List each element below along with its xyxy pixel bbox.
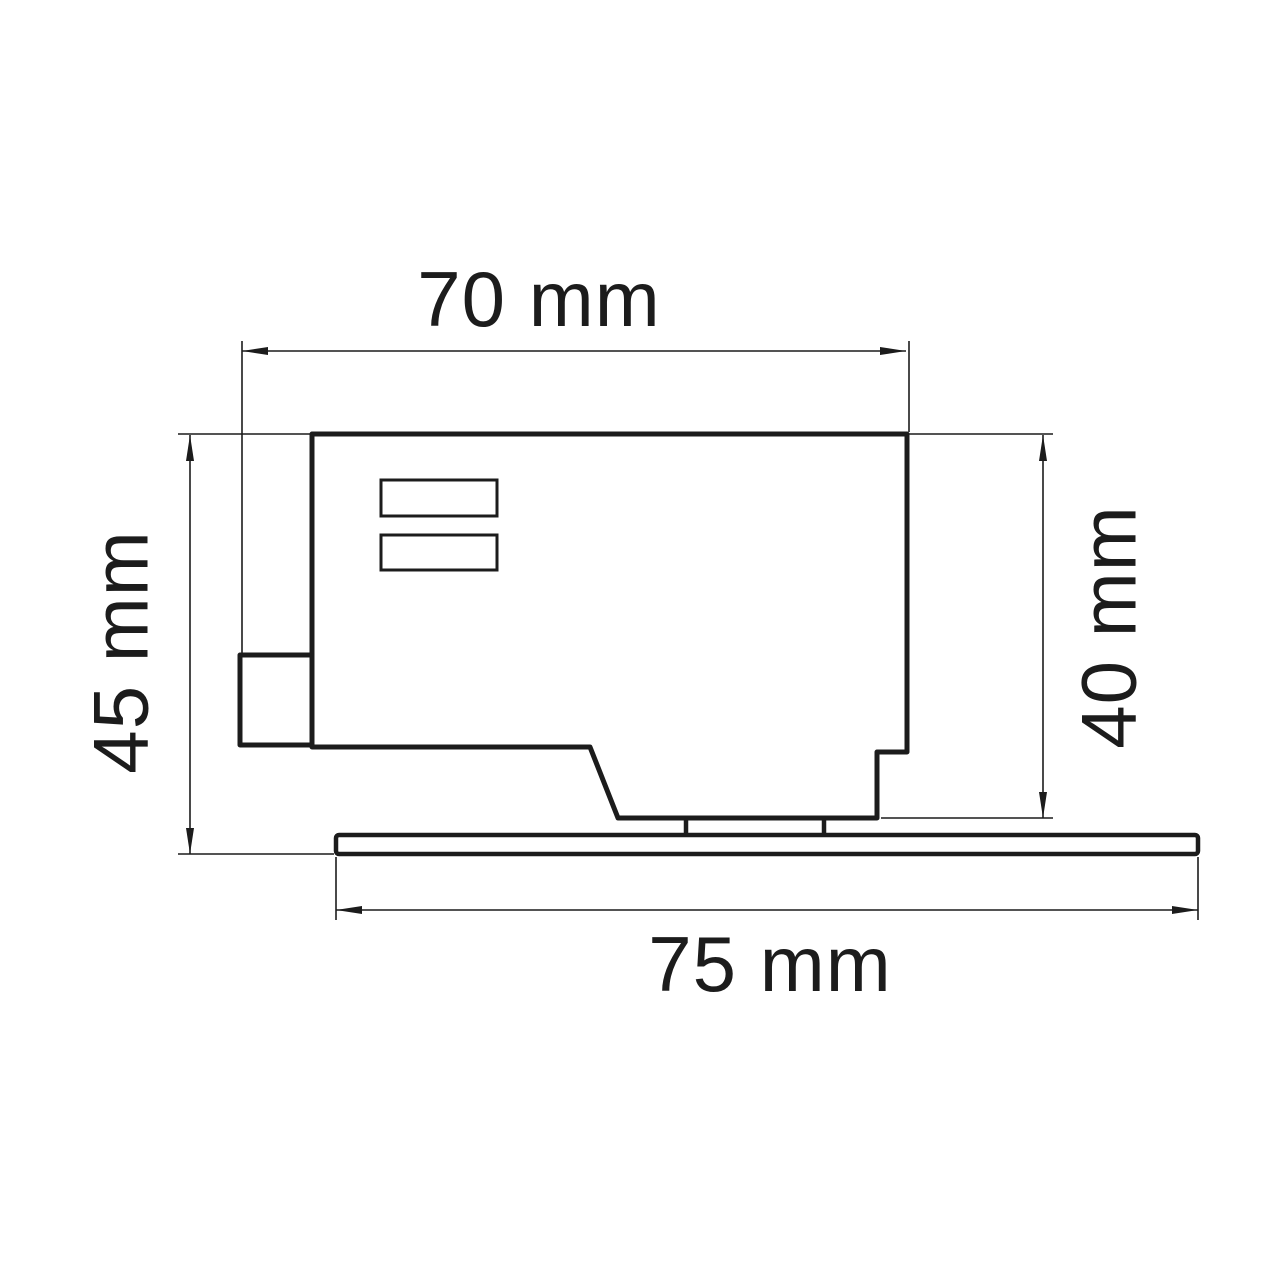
arrowhead-up: [186, 435, 194, 461]
dimension-label-right: 40 mm: [1064, 505, 1152, 748]
technical-drawing-page: 70 mm 45 mm 40 mm 75 mm: [0, 0, 1280, 1280]
arrowhead-down: [1039, 792, 1047, 818]
dimension-drawing: 70 mm 45 mm 40 mm 75 mm: [0, 0, 1280, 1280]
side-connector-block: [240, 655, 312, 745]
device-body-outline: [312, 434, 907, 818]
dimension-right-height: 40 mm: [881, 434, 1152, 818]
arrowhead-down: [186, 828, 194, 854]
arrowhead-up: [1039, 435, 1047, 461]
arrowhead-right: [1172, 906, 1198, 914]
arrowhead-left: [336, 906, 362, 914]
dimension-label-left: 45 mm: [76, 530, 164, 773]
dimension-bottom-width: 75 mm: [336, 857, 1198, 1008]
arrowhead-left: [242, 347, 268, 355]
part-views: [240, 434, 1198, 854]
dimension-label-top: 70 mm: [417, 255, 660, 343]
arrowhead-right: [880, 347, 906, 355]
base-plate: [336, 835, 1198, 854]
dimension-label-bottom: 75 mm: [648, 920, 891, 1008]
dimension-left-height: 45 mm: [76, 434, 334, 854]
